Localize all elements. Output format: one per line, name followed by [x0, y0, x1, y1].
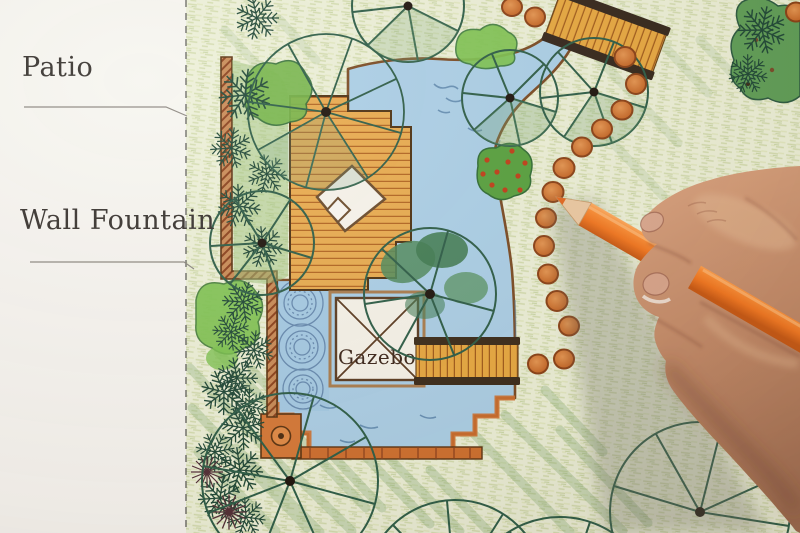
wall-fountain-label: Wall Fountain: [20, 205, 215, 236]
boardwalk: [414, 337, 520, 385]
shrub: [456, 24, 517, 68]
leader-lines: [24, 107, 194, 269]
wall-fountain-leader: [30, 262, 194, 269]
patio-leader: [24, 107, 187, 116]
patio-label: Patio: [22, 52, 93, 83]
photo-landscape-plan: Gazebo: [0, 0, 800, 533]
plan-drawing: Gazebo: [0, 0, 800, 533]
gazebo-label: Gazebo: [338, 345, 416, 369]
